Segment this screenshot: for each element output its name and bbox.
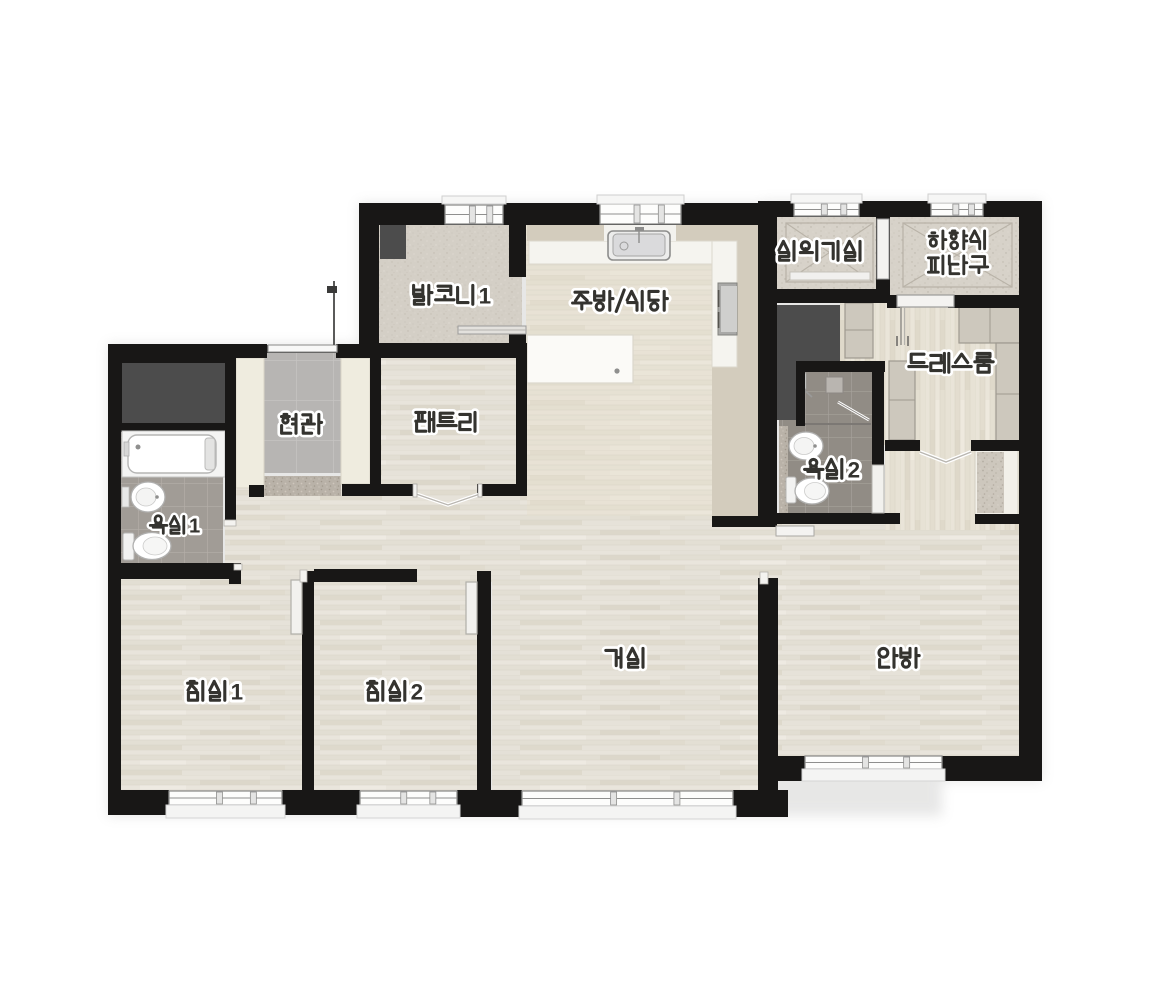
svg-text:1: 1 [231,680,243,705]
svg-text:2: 2 [848,458,860,483]
svg-text:2: 2 [411,680,423,705]
svg-text:1: 1 [479,284,491,309]
svg-text:1: 1 [189,516,200,538]
